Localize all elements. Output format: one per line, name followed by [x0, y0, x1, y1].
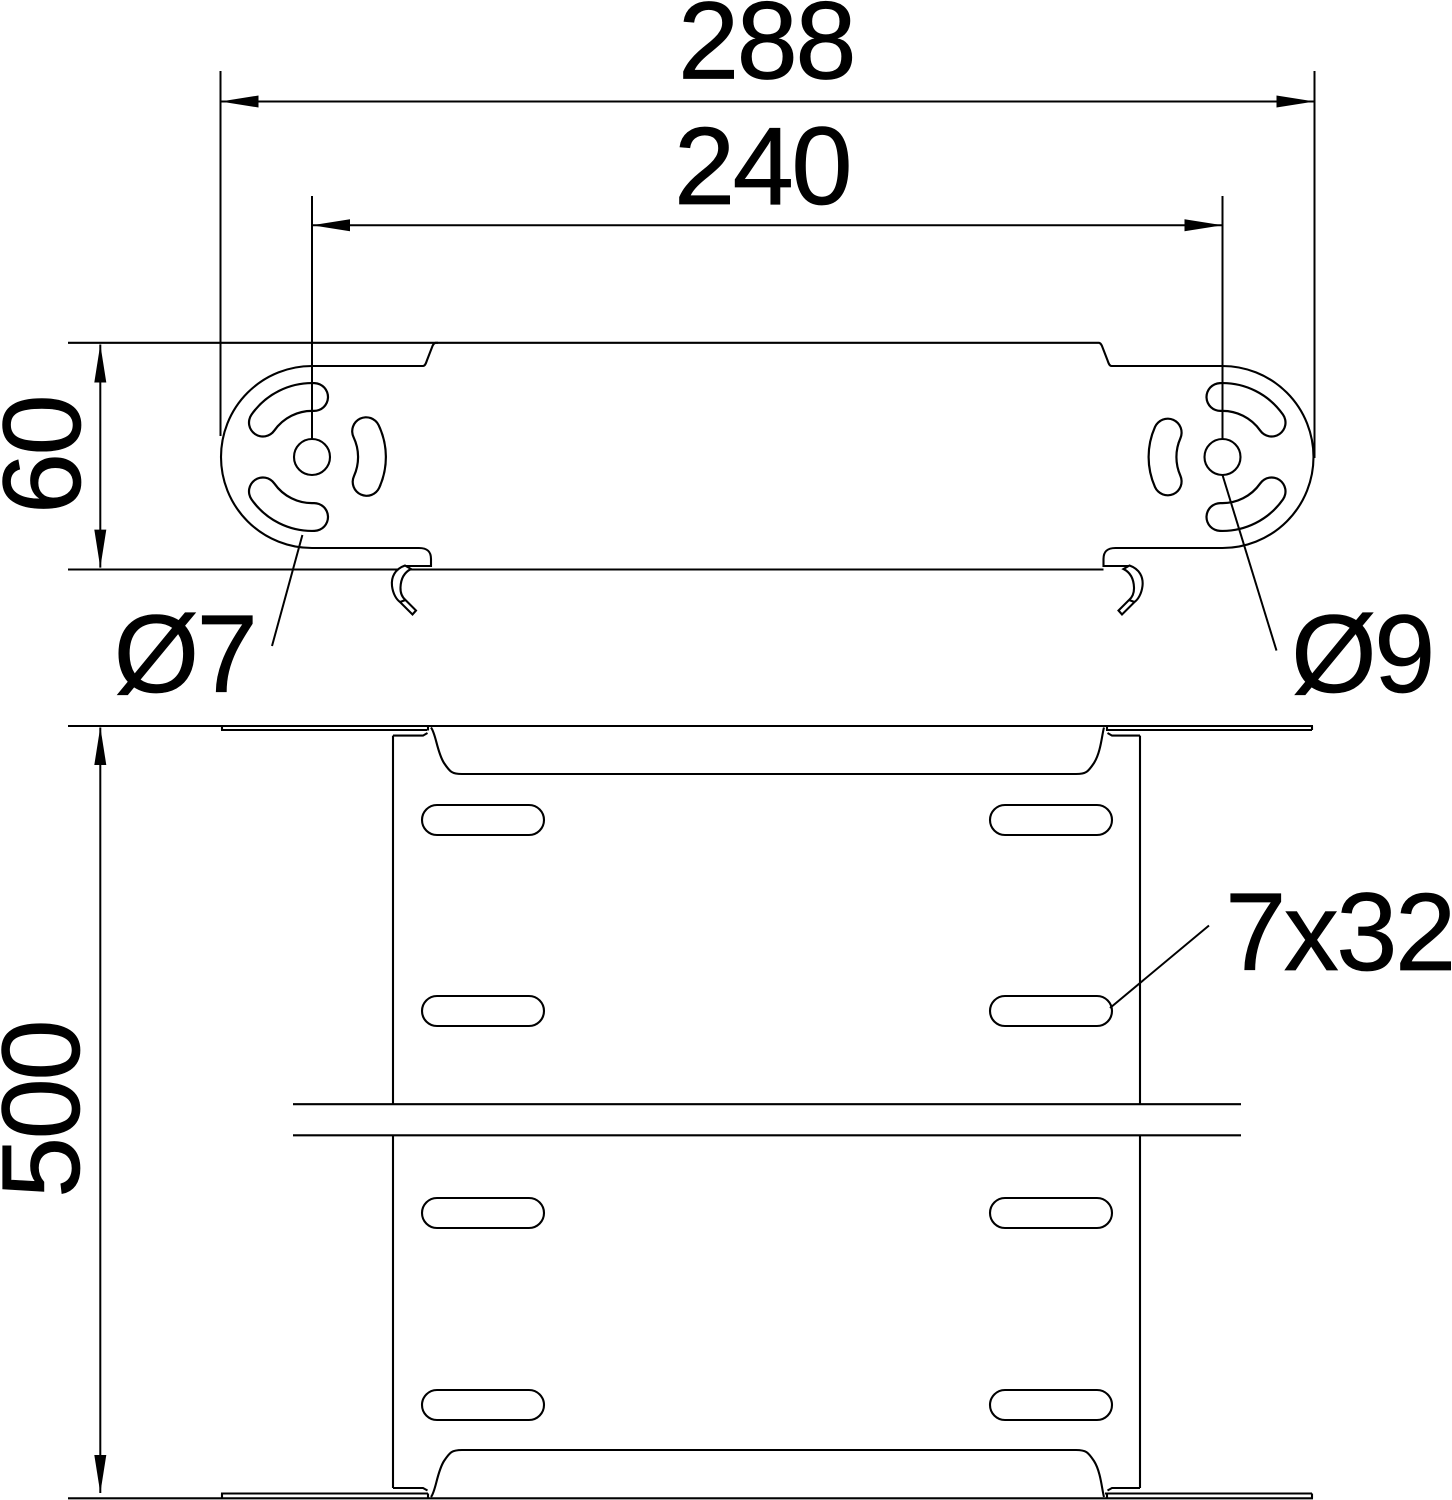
svg-text:Ø7: Ø7 — [114, 593, 256, 716]
svg-text:Ø9: Ø9 — [1291, 593, 1433, 716]
svg-text:500: 500 — [0, 1022, 103, 1198]
svg-text:240: 240 — [674, 105, 850, 228]
svg-text:7x32: 7x32 — [1225, 871, 1452, 994]
svg-text:288: 288 — [678, 0, 854, 102]
svg-text:60: 60 — [0, 397, 104, 514]
